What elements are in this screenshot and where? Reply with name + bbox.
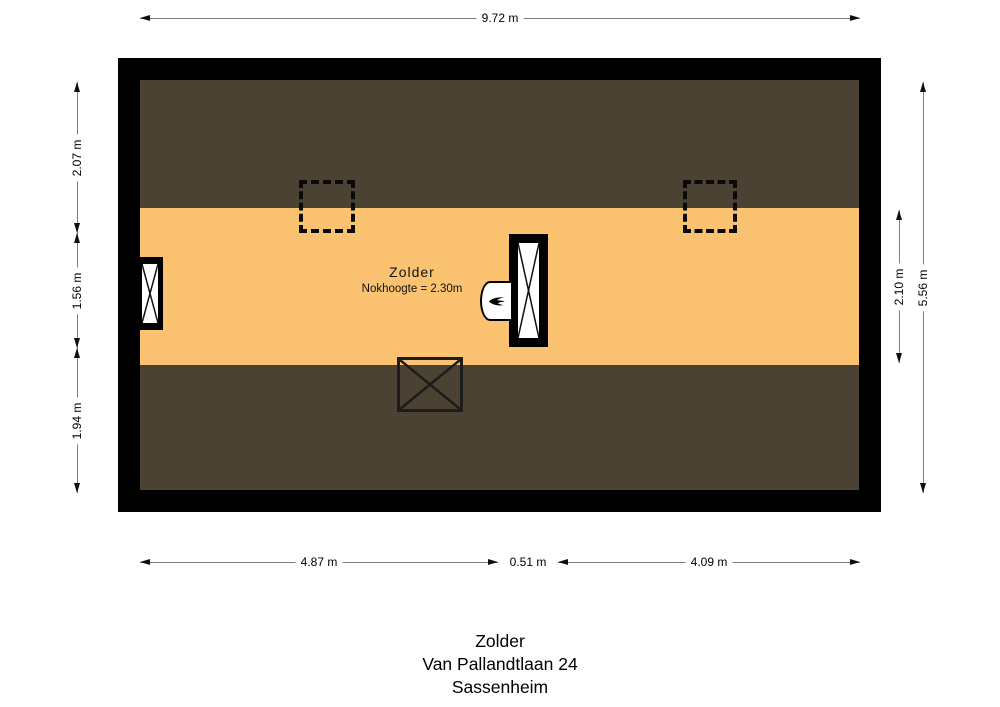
crossed-box-icon bbox=[397, 357, 463, 412]
arrow-down-icon bbox=[920, 483, 926, 493]
dimension-label: 1.56 m bbox=[70, 267, 84, 314]
sloped-ceiling-area-bottom bbox=[140, 365, 859, 490]
caption-address: Van Pallandtlaan 24 bbox=[422, 653, 577, 676]
sloped-ceiling-area-top bbox=[140, 80, 859, 208]
dimension-label: 2.07 m bbox=[70, 134, 84, 181]
arrow-right-icon bbox=[488, 559, 498, 565]
dimension-label: 4.09 m bbox=[686, 555, 733, 569]
arrow-up-icon bbox=[920, 82, 926, 92]
boiler bbox=[480, 281, 513, 321]
window-cross-icon bbox=[518, 243, 539, 338]
arrow-down-icon bbox=[74, 483, 80, 493]
caption-room: Zolder bbox=[422, 630, 577, 653]
floorplan-page: 9.72 m 2.07 m 1.56 m 1.94 m 2.10 m 5.56 … bbox=[0, 0, 1000, 707]
flame-icon bbox=[488, 294, 506, 309]
window-cross-icon bbox=[142, 264, 158, 323]
arrow-down-icon bbox=[896, 353, 902, 363]
arrow-up-icon bbox=[74, 82, 80, 92]
roof-window-dashed-icon bbox=[683, 180, 737, 233]
dimension-label: 2.10 m bbox=[892, 263, 906, 310]
arrow-up-icon bbox=[896, 210, 902, 220]
roof-window-dashed-icon bbox=[299, 180, 355, 233]
arrow-down-icon bbox=[74, 338, 80, 348]
dimension-label: 1.94 m bbox=[70, 397, 84, 444]
arrow-left-icon bbox=[140, 559, 150, 565]
caption-city: Sassenheim bbox=[422, 676, 577, 699]
dimension-label-bottom-middle: 0.51 m bbox=[505, 555, 552, 569]
arrow-up-icon bbox=[74, 348, 80, 358]
dimension-label: 4.87 m bbox=[296, 555, 343, 569]
room-name: Zolder bbox=[362, 264, 463, 280]
plan-caption: Zolder Van Pallandtlaan 24 Sassenheim bbox=[422, 630, 577, 699]
center-window bbox=[509, 234, 548, 347]
arrow-left-icon bbox=[558, 559, 568, 565]
arrow-right-icon bbox=[850, 559, 860, 565]
ridge-height-label: Nokhoogte = 2.30m bbox=[362, 283, 463, 295]
floorplan-drawing: Zolder Nokhoogte = 2.30m bbox=[118, 58, 881, 512]
left-window bbox=[137, 257, 163, 330]
arrow-up-icon bbox=[74, 233, 80, 243]
arrow-down-icon bbox=[74, 223, 80, 233]
arrow-right-icon bbox=[850, 15, 860, 21]
dimension-label: 5.56 m bbox=[916, 264, 930, 311]
dimension-label: 9.72 m bbox=[477, 11, 524, 25]
arrow-left-icon bbox=[140, 15, 150, 21]
room-label-group: Zolder Nokhoogte = 2.30m bbox=[362, 264, 463, 295]
